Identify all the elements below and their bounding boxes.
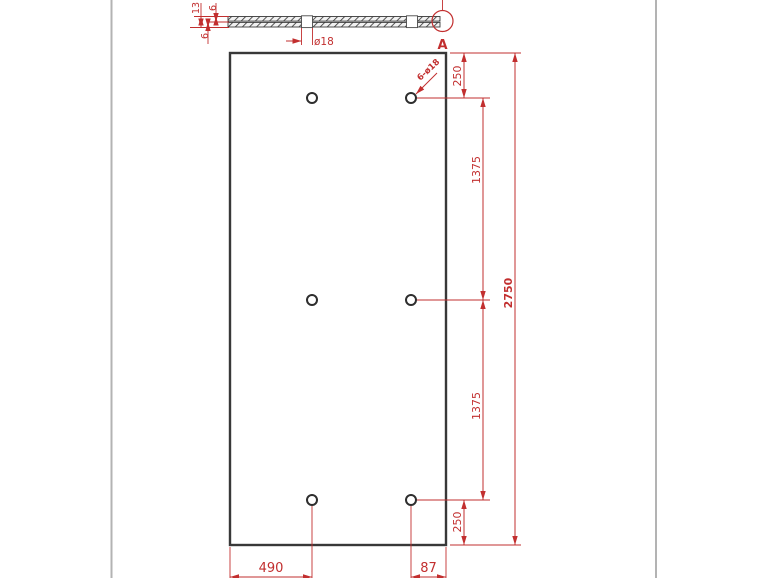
- drawing-canvas: A 13 6 6 ø18: [0, 0, 770, 578]
- dim-87-label: 87: [420, 561, 437, 576]
- page-border-left: [111, 0, 113, 578]
- dim-bottom-layer-label: 6: [200, 33, 211, 39]
- dim-section-hole: [286, 28, 313, 45]
- front-view: 6-ø18 250 1375 1375 250 2750 490 87: [230, 53, 521, 578]
- hole-middle-left: [307, 295, 317, 305]
- detail-label: A: [437, 38, 447, 53]
- section-hole-gap-right: [407, 16, 418, 28]
- hole-top-left: [307, 93, 317, 103]
- dim-490-label: 490: [259, 561, 284, 576]
- dim-top-250-label: 250: [451, 66, 464, 87]
- dim-top-layer-label: 6: [208, 5, 219, 11]
- dim-bottom-250-label: 250: [451, 512, 464, 533]
- hole-middle-right: [406, 295, 416, 305]
- hole-top-right: [406, 93, 416, 103]
- technical-drawing-svg: A 13 6 6 ø18: [0, 0, 770, 578]
- hole-bottom-right: [406, 495, 416, 505]
- page-border-right: [655, 0, 657, 578]
- dim-section-hole-label: ø18: [314, 36, 334, 48]
- section-view: A 13 6 6 ø18: [190, 0, 453, 53]
- hole-bottom-left: [307, 495, 317, 505]
- dim-upper-1375-label: 1375: [470, 156, 483, 184]
- section-hole-gap-left: [302, 16, 313, 28]
- dim-total-thickness-label: 13: [191, 2, 202, 14]
- dim-2750-label: 2750: [502, 277, 515, 308]
- dim-lower-1375-label: 1375: [470, 392, 483, 420]
